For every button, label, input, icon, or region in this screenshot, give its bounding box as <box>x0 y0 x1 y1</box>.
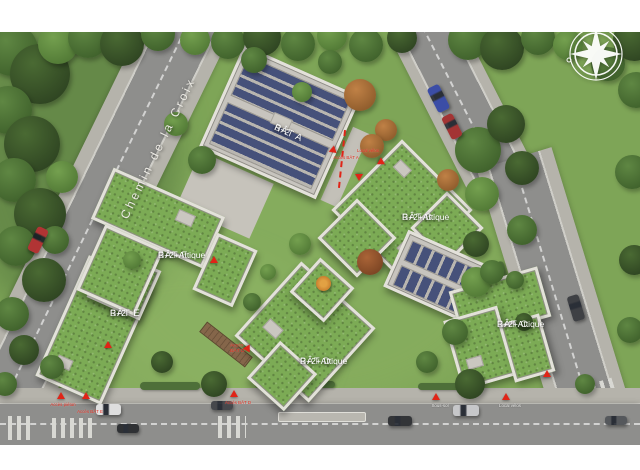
parked-car <box>605 416 627 425</box>
access-marker-label: Accès BÂT E <box>77 409 103 414</box>
compass-rose-icon <box>564 32 628 86</box>
site-plan-rendering: BÂT A R+2 BÂT B R+2+Attique BÂT C R+2+At… <box>0 0 640 470</box>
access-marker <box>432 393 440 400</box>
aerial-scene: BÂT A R+2 BÂT B R+2+Attique BÂT C R+2+At… <box>0 32 640 445</box>
access-marker-label: Sous-sol <box>431 403 448 408</box>
access-marker-label: Local vélos <box>357 148 379 153</box>
access-marker-label: Accès BÂT D <box>225 400 251 405</box>
parked-car <box>441 112 463 140</box>
access-marker-label: Local vélos <box>499 403 521 408</box>
parked-car <box>426 83 450 113</box>
access-marker <box>104 341 112 348</box>
access-marker <box>230 390 238 397</box>
access-marker <box>355 174 363 181</box>
parked-car <box>453 405 479 416</box>
parked-car <box>27 226 49 255</box>
access-marker <box>57 392 65 399</box>
access-marker <box>82 392 90 399</box>
parked-car <box>388 416 412 426</box>
car-layer <box>0 32 640 445</box>
parked-car <box>117 424 139 433</box>
parked-car <box>566 294 585 322</box>
access-marker <box>210 256 218 263</box>
access-marker-label: Accès BÂT A <box>333 155 359 160</box>
access-marker <box>543 370 551 377</box>
access-marker <box>502 393 510 400</box>
access-marker-label: Accès piéton <box>50 402 75 407</box>
